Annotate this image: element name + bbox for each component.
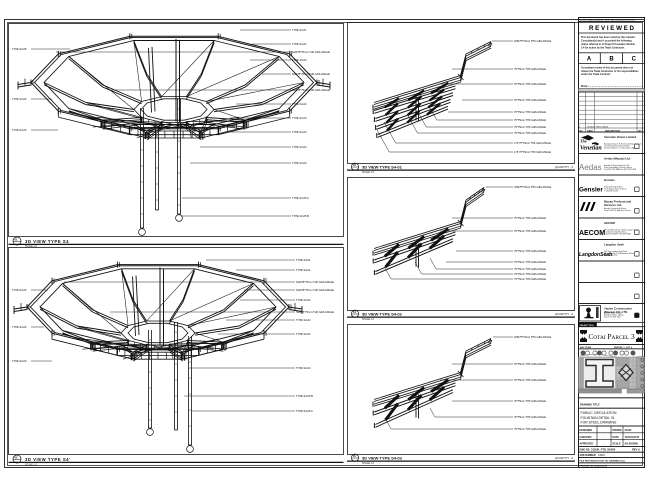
svg-text:75*75mm THK G&S ANGLE: 75*75mm THK G&S ANGLE bbox=[514, 131, 546, 135]
svg-text:TYPE S4-03: TYPE S4-03 bbox=[12, 128, 27, 132]
svg-text:T: +853.2871.5055: T: +853.2871.5055 bbox=[604, 191, 618, 193]
svg-text:Macau Tel: 2837 3355: Macau Tel: 2837 3355 bbox=[604, 317, 621, 319]
svg-text:FOUNTAIN DETAIL 01: FOUNTAIN DETAIL 01 bbox=[581, 416, 615, 420]
svg-text:L75 75*75mm THK G&S ANGLE: L75 75*75mm THK G&S ANGLE bbox=[514, 141, 551, 145]
svg-text:SHS75*75mm THK G&S ANGLE: SHS75*75mm THK G&S ANGLE bbox=[296, 280, 334, 284]
svg-text:SCALE 1:2: SCALE 1:2 bbox=[25, 463, 37, 466]
svg-text:COTAI PARCEL 3: COTAI PARCEL 3 bbox=[588, 333, 635, 341]
svg-text:B: B bbox=[609, 57, 614, 63]
svg-text:PRINTED ON 13 AUG 2015: PRINTED ON 13 AUG 2015 bbox=[580, 464, 608, 467]
svg-text:75*75mm THK G&S ANGLE: 75*75mm THK G&S ANGLE bbox=[514, 125, 546, 129]
svg-text:75*75mm THK G&S ANGLE: 75*75mm THK G&S ANGLE bbox=[514, 260, 546, 264]
svg-text:DRAWING TITLE: DRAWING TITLE bbox=[580, 404, 600, 407]
svg-text:SHS75*75mm THK G&S ANGLE: SHS75*75mm THK G&S ANGLE bbox=[514, 39, 551, 43]
svg-text:TYPE S4-02: TYPE S4-02 bbox=[12, 288, 27, 292]
svg-text:Gensler: Gensler bbox=[579, 187, 603, 194]
svg-text:TYPE S4-02: TYPE S4-02 bbox=[12, 97, 27, 101]
svg-text:REV A: REV A bbox=[632, 448, 640, 452]
svg-text:75*75mm THK G&S ANGLE: 75*75mm THK G&S ANGLE bbox=[514, 277, 546, 281]
svg-text:SHS75*75mm THK G&S ANGLE: SHS75*75mm THK G&S ANGLE bbox=[292, 72, 330, 76]
svg-text:SHS75*75mm THK G&S ANGLE: SHS75*75mm THK G&S ANGLE bbox=[292, 88, 330, 92]
svg-text:L75 75*75mm THK G&S ANGLE: L75 75*75mm THK G&S ANGLE bbox=[514, 150, 551, 154]
svg-text:TYPE S4-03: TYPE S4-03 bbox=[292, 116, 307, 120]
svg-text:3D VIEW TYPE S4': 3D VIEW TYPE S4' bbox=[25, 457, 71, 462]
svg-text:under the Trade Contract.: under the Trade Contract. bbox=[581, 73, 611, 76]
svg-text:Services Ltd.: Services Ltd. bbox=[604, 203, 622, 207]
svg-text:SHS75*75mm THK G&S ANGLE: SHS75*75mm THK G&S ANGLE bbox=[514, 185, 551, 189]
svg-text:75*75mm THK G&S ANGLE: 75*75mm THK G&S ANGLE bbox=[514, 249, 546, 253]
svg-text:TYPE S4-01: TYPE S4-01 bbox=[292, 28, 307, 32]
svg-text:SHS75*75mm THK G&S ANGLE: SHS75*75mm THK G&S ANGLE bbox=[296, 288, 334, 292]
svg-text:TYPE S4-02: TYPE S4-02 bbox=[12, 325, 27, 329]
svg-text:CHAD: CHAD bbox=[625, 429, 632, 432]
svg-text:TYPE S4-04: TYPE S4-04 bbox=[296, 366, 311, 370]
svg-text:AECOM: AECOM bbox=[604, 221, 615, 225]
svg-text:SCALE 1:2: SCALE 1:2 bbox=[362, 171, 374, 174]
svg-text:75*75mm THK G&S ANGLE: 75*75mm THK G&S ANGLE bbox=[514, 82, 546, 86]
svg-text:SHS75*75mm THK G&S ANGLE: SHS75*75mm THK G&S ANGLE bbox=[292, 50, 330, 54]
svg-text:75*75mm THK G&S ANGLE: 75*75mm THK G&S ANGLE bbox=[514, 362, 546, 366]
svg-text:Campo 285-295, AIA Tower, Maca: Campo 285-295, AIA Tower, Macau bbox=[604, 209, 630, 212]
svg-text:3D VIEW TYPE S4-02: 3D VIEW TYPE S4-02 bbox=[362, 312, 403, 317]
svg-text:TYPE S4-02: TYPE S4-02 bbox=[292, 102, 307, 106]
svg-text:75*75mm THK G&S ANGLE: 75*75mm THK G&S ANGLE bbox=[514, 378, 546, 382]
svg-text:DATE: DATE bbox=[613, 436, 620, 439]
svg-text:75*75mm THK G&S ANGLE: 75*75mm THK G&S ANGLE bbox=[514, 399, 546, 403]
svg-text:SCALE: SCALE bbox=[613, 443, 622, 446]
svg-text:AS SHOWN: AS SHOWN bbox=[625, 443, 638, 446]
svg-text:TYPE S4-03: TYPE S4-03 bbox=[296, 332, 311, 336]
svg-text:TYPE S4-01: TYPE S4-01 bbox=[296, 258, 311, 262]
svg-text:C: C bbox=[632, 57, 637, 63]
svg-text:75*75mm THK G&S ANGLE: 75*75mm THK G&S ANGLE bbox=[514, 427, 546, 431]
svg-text:APPROVED: APPROVED bbox=[580, 443, 594, 446]
svg-text:TYPE S4-02: TYPE S4-02 bbox=[292, 58, 307, 62]
svg-text:75*75mm THK G&S ANGLE: 75*75mm THK G&S ANGLE bbox=[514, 267, 546, 271]
svg-text:TYPE S4-04: TYPE S4-04 bbox=[292, 130, 307, 134]
svg-text:T: 853 2872 3839 F: 853 2872: T: 853 2872 3839 F: 853 2872 3846 bbox=[604, 234, 631, 236]
svg-text:SHS75*75mm THK G&S ANGLE: SHS75*75mm THK G&S ANGLE bbox=[296, 310, 334, 314]
svg-text:Executive Offices - L2, Taipa,: Executive Offices - L2, Taipa, Macau SAR bbox=[604, 147, 636, 150]
svg-text:DESIGNED: DESIGNED bbox=[580, 429, 593, 432]
svg-text:Venetian: Venetian bbox=[580, 146, 602, 152]
svg-text:SCALE 1:2: SCALE 1:2 bbox=[362, 318, 374, 321]
svg-text:31SUK_FTD_SK484: 31SUK_FTD_SK484 bbox=[591, 448, 616, 452]
svg-text:75*75mm THK G&S ANGLE: 75*75mm THK G&S ANGLE bbox=[514, 110, 546, 114]
svg-text:13/AUG/2015: 13/AUG/2015 bbox=[625, 436, 640, 439]
svg-text:75*75mm THK G&S ANGLE: 75*75mm THK G&S ANGLE bbox=[514, 216, 546, 220]
svg-text:QUANTITY : 4: QUANTITY : 4 bbox=[555, 165, 573, 169]
svg-text:QUANTITY : 4: QUANTITY : 4 bbox=[555, 312, 573, 316]
svg-text:75*75mm THK G&S ANGLE: 75*75mm THK G&S ANGLE bbox=[514, 229, 546, 233]
svg-text:QUANTITY : 4: QUANTITY : 4 bbox=[555, 456, 573, 460]
svg-text:3D VIEW TYPE S4-01: 3D VIEW TYPE S4-01 bbox=[362, 165, 403, 170]
svg-text:TYPE S4-05 A: TYPE S4-05 A bbox=[292, 196, 309, 200]
svg-text:Gensler: Gensler bbox=[604, 178, 616, 182]
svg-text:A: A bbox=[587, 57, 592, 63]
svg-text:TYPE S4-03: TYPE S4-03 bbox=[292, 161, 307, 165]
svg-text:TYPE S4-02: TYPE S4-02 bbox=[296, 298, 311, 302]
svg-text:TYPE S4-04: TYPE S4-04 bbox=[292, 145, 307, 149]
svg-text:Langdon Seah: Langdon Seah bbox=[604, 243, 624, 247]
svg-text:Venetian Orient Limited: Venetian Orient Limited bbox=[604, 135, 637, 139]
svg-text:PUBLIC CIRCULATION: PUBLIC CIRCULATION bbox=[581, 411, 617, 415]
svg-text:3D VIEW TYPE S4: 3D VIEW TYPE S4 bbox=[25, 239, 69, 244]
svg-text:Tel: (853) 2875 3088 Fax: (85: Tel: (853) 2875 3088 Fax: (853) 2875 330… bbox=[604, 169, 636, 171]
svg-text:CHECKED: CHECKED bbox=[580, 436, 592, 439]
svg-text:TYPE S4-03: TYPE S4-03 bbox=[12, 359, 27, 363]
svg-text:TYPE S4-05 B: TYPE S4-05 B bbox=[296, 394, 313, 398]
svg-text:FILE PATH AND3-FOUN_FD_DRAWING: FILE PATH AND3-FOUN_FD_DRAWING.dwg bbox=[580, 459, 626, 462]
svg-text:TYPE S4-02: TYPE S4-02 bbox=[296, 318, 311, 322]
svg-text:DRAWN: DRAWN bbox=[613, 429, 622, 432]
svg-text:75*75mm THK G&S ANGLE: 75*75mm THK G&S ANGLE bbox=[514, 415, 546, 419]
svg-text:R E V I E W E D: R E V I E W E D bbox=[589, 25, 635, 32]
svg-text:75*75mm THK G&S ANGLE: 75*75mm THK G&S ANGLE bbox=[514, 272, 546, 276]
svg-text:5.4 for action by the Trade Co: 5.4 for action by the Trade Contractor. bbox=[581, 46, 625, 49]
svg-text:TYPE S4-05: TYPE S4-05 bbox=[12, 47, 27, 51]
svg-text:FOR STEEL DRAWING: FOR STEEL DRAWING bbox=[581, 420, 617, 424]
svg-text:DWG NO: DWG NO bbox=[580, 449, 590, 452]
svg-text:31526: 31526 bbox=[598, 454, 605, 457]
svg-text:JOB NUMBER: JOB NUMBER bbox=[580, 454, 596, 457]
svg-text:75*75mm THK G&S ANGLE: 75*75mm THK G&S ANGLE bbox=[514, 118, 546, 122]
svg-text:TYPE S4-01: TYPE S4-01 bbox=[292, 42, 307, 46]
svg-text:3D VIEW TYPE S4-03: 3D VIEW TYPE S4-03 bbox=[362, 456, 403, 461]
svg-text:Aedas: Aedas bbox=[579, 163, 602, 172]
svg-text:75*75mm THK G&S ANGLE: 75*75mm THK G&S ANGLE bbox=[514, 98, 546, 102]
svg-text:75*75mm THK G&S ANGLE: 75*75mm THK G&S ANGLE bbox=[514, 67, 546, 71]
svg-text:TYPE S4-01: TYPE S4-01 bbox=[296, 268, 311, 272]
svg-text:Date :: Date : bbox=[581, 84, 589, 88]
svg-text:Aedas (Macau) Ltd.: Aedas (Macau) Ltd. bbox=[604, 157, 631, 161]
svg-text:TYPE S4-05 A: TYPE S4-05 A bbox=[296, 409, 313, 413]
svg-text:SCALE 1:2: SCALE 1:2 bbox=[362, 462, 374, 465]
svg-text:AECOM: AECOM bbox=[579, 230, 605, 237]
svg-text:SHS75*75mm THK G&S ANGLE: SHS75*75mm THK G&S ANGLE bbox=[514, 335, 551, 339]
svg-text:T: 853 2833 1710: T: 853 2833 1710 bbox=[604, 255, 617, 257]
svg-text:TYPE S4-05 B: TYPE S4-05 B bbox=[292, 214, 309, 218]
